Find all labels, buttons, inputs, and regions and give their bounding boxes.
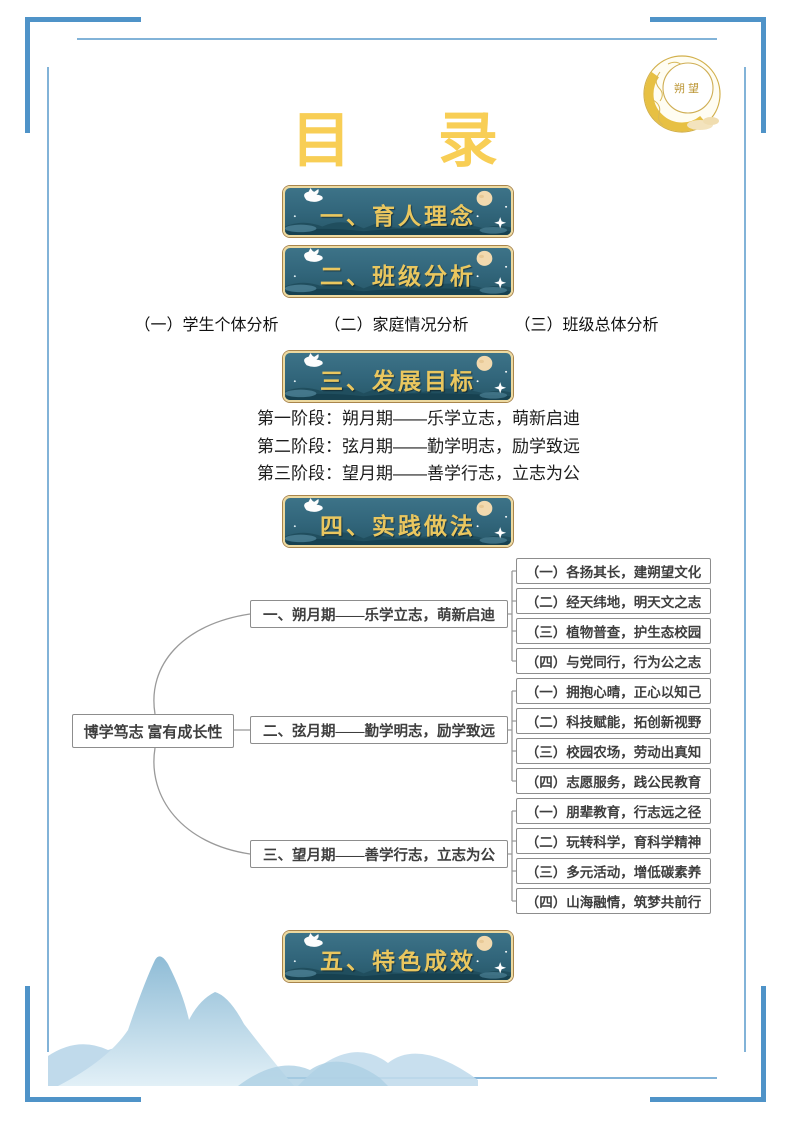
banner-label: 三、发展目标: [285, 353, 511, 400]
mindmap-leaf: （二）经天纬地，明天文之志: [516, 588, 711, 614]
mindmap-leaf: （二）玩转科学，育科学精神: [516, 828, 711, 854]
development-stages: 第一阶段：朔月期——乐学立志，萌新启迪 第二阶段：弦月期——勤学明志，励学致远 …: [257, 405, 580, 488]
mindmap-branch-3: 三、望月期——善学行志，立志为公: [250, 840, 508, 868]
stage-line-2: 第二阶段：弦月期——勤学明志，励学致远: [257, 433, 580, 461]
mindmap-leaf: （四）山海融情，筑梦共前行: [516, 888, 711, 914]
mindmap-leaf: （三）植物普查，护生态校园: [516, 618, 711, 644]
inner-frame-top: [77, 38, 717, 40]
class-analysis-items: （一）学生个体分析 （二）家庭情况分析 （三）班级总体分析: [0, 311, 793, 335]
mindmap-leaf: （一）朋辈教育，行志远之径: [516, 798, 711, 824]
mindmap-leaf: （二）科技赋能，拓创新视野: [516, 708, 711, 734]
banner-section-4: 四、实践做法: [283, 496, 513, 547]
mindmap-root: 博学笃志 富有成长性: [72, 714, 234, 748]
mindmap-branch-1: 一、朔月期——乐学立志，萌新启迪: [250, 600, 508, 628]
inner-frame-right: [744, 67, 746, 1052]
banner-section-1: 一、育人理念: [283, 186, 513, 237]
inner-frame-left: [47, 67, 49, 1052]
banner-section-2: 二、班级分析: [283, 246, 513, 297]
mindmap-leaf: （四）志愿服务，践公民教育: [516, 768, 711, 794]
mindmap-branch-2: 二、弦月期——勤学明志，励学致远: [250, 716, 508, 744]
banner-label: 四、实践做法: [285, 498, 511, 545]
mindmap-leaf: （一）各扬其长，建朔望文化: [516, 558, 711, 584]
stage-line-1: 第一阶段：朔月期——乐学立志，萌新启迪: [257, 405, 580, 433]
stage-line-3: 第三阶段：望月期——善学行志，立志为公: [257, 460, 580, 488]
banner-label: 二、班级分析: [285, 248, 511, 295]
page-title: 目 录: [0, 92, 793, 179]
mountains-illustration: [48, 938, 478, 1086]
mindmap-leaf: （四）与党同行，行为公之志: [516, 648, 711, 674]
mindmap-leaf: （一）拥抱心晴，正心以知己: [516, 678, 711, 704]
banner-section-3: 三、发展目标: [283, 351, 513, 402]
mindmap-leaf: （三）多元活动，增低碳素养: [516, 858, 711, 884]
corner-bracket-bottom-right: [650, 986, 766, 1102]
analysis-item-2: （二）家庭情况分析: [324, 311, 468, 335]
mindmap-leaf: （三）校园农场，劳动出真知: [516, 738, 711, 764]
analysis-item-3: （三）班级总体分析: [515, 311, 659, 335]
banner-label: 一、育人理念: [285, 188, 511, 235]
analysis-item-1: （一）学生个体分析: [134, 311, 278, 335]
toc-page: 朔望 目 录 一、育人理念: [0, 0, 793, 1122]
